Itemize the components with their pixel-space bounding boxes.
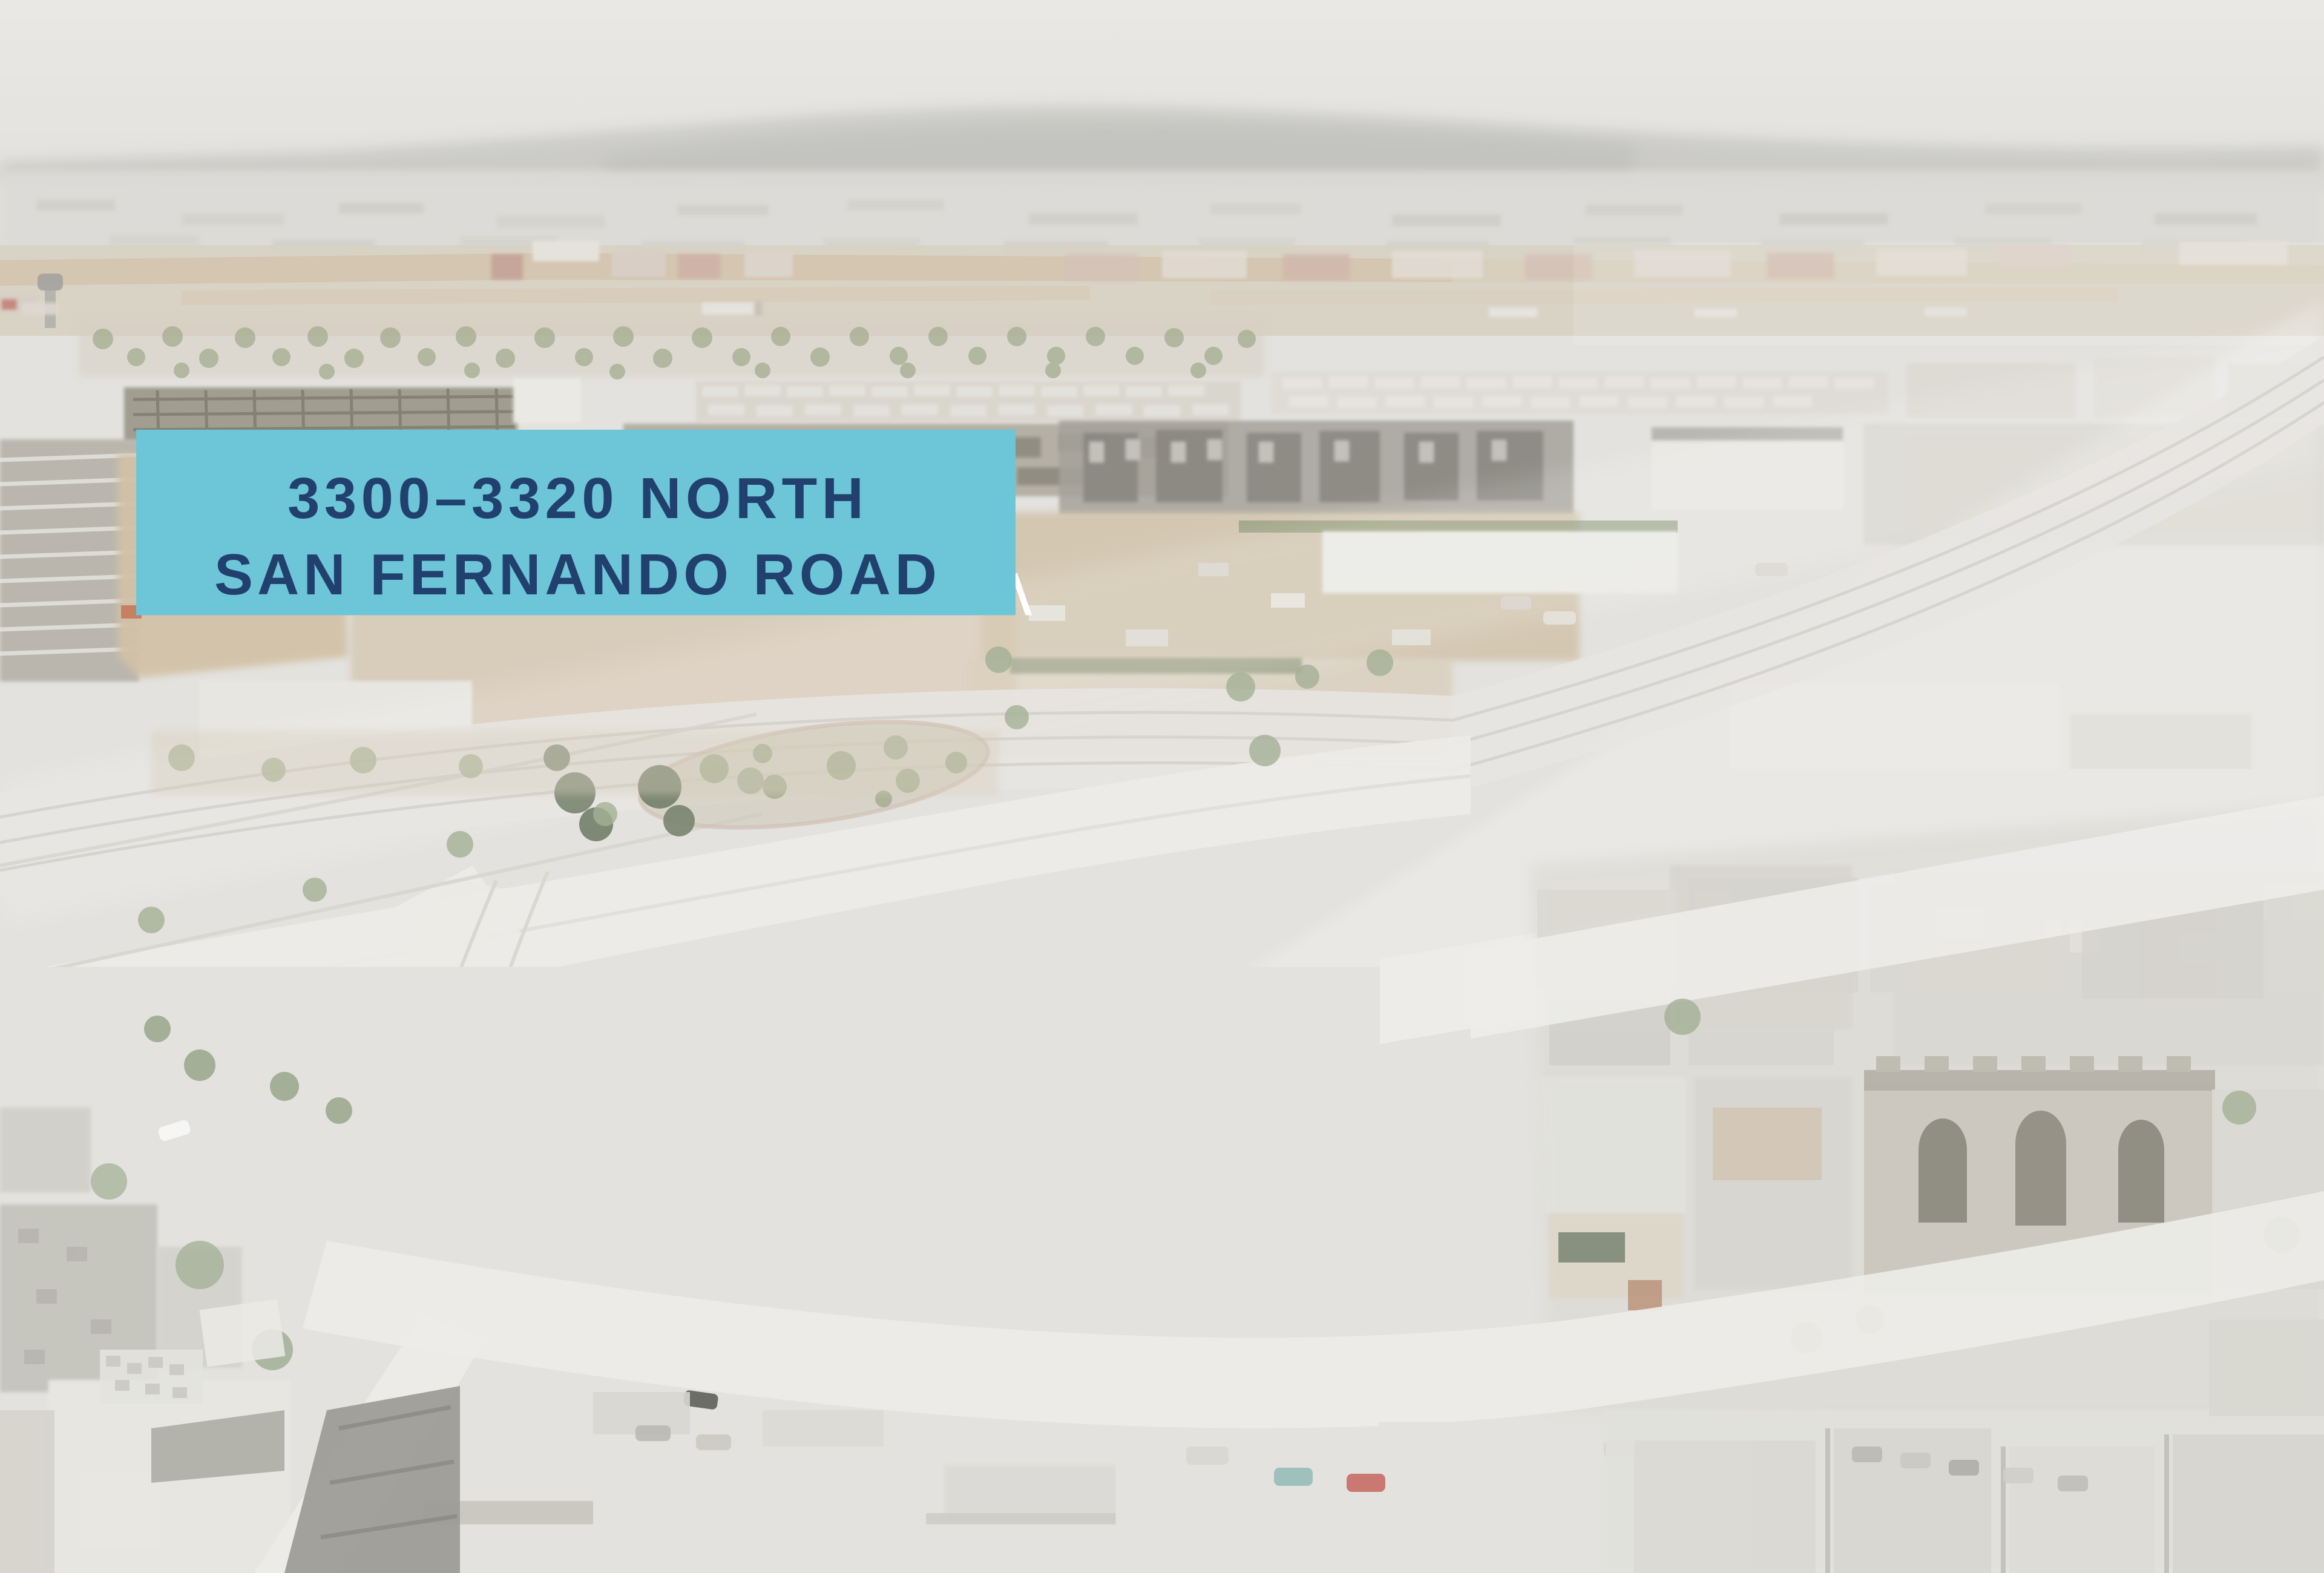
svg-text:SAN FERNANDO ROAD: SAN FERNANDO ROAD	[214, 542, 937, 607]
svg-text:BURBANK, CALIFORNIA: BURBANK, CALIFORNIA	[188, 619, 963, 683]
svg-text:3300–3320 NORTH: 3300–3320 NORTH	[287, 466, 864, 531]
